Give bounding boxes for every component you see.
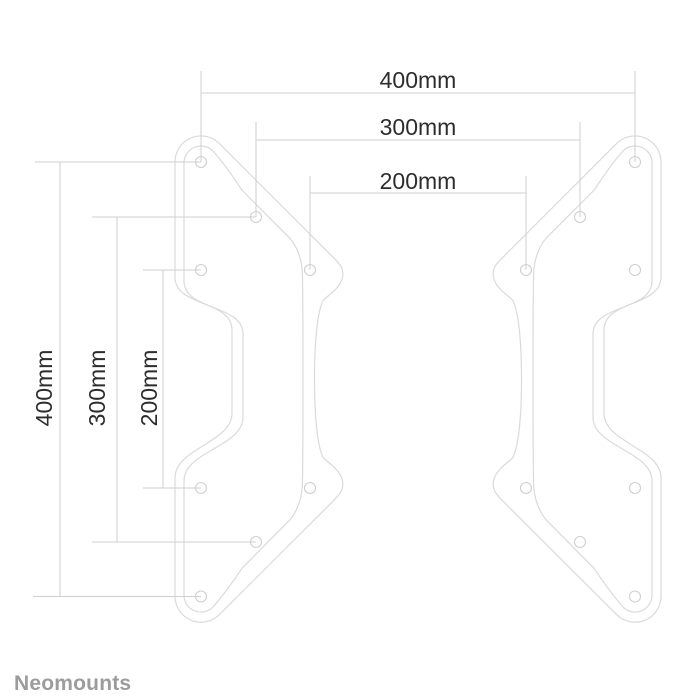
vesa-plate-left	[175, 136, 343, 622]
mounting-hole	[630, 265, 641, 276]
neomounts-logo: Neomounts	[14, 672, 131, 695]
mounting-holes	[196, 157, 641, 603]
dimension-horizontal-300: 300mm	[256, 114, 580, 217]
vesa-adapter-diagram: 400mm 300mm 200mm 400mm 300mm 200mm Neom…	[0, 0, 700, 700]
dimension-vertical-200: 200mm	[136, 270, 201, 488]
dimension-horizontal-200: 200mm	[310, 168, 526, 270]
dimension-label-horizontal-200: 200mm	[380, 168, 457, 194]
mounting-hole	[305, 483, 316, 494]
mounting-hole	[630, 483, 641, 494]
dimension-label-horizontal-400: 400mm	[380, 67, 457, 93]
vesa-plate-right	[493, 136, 661, 622]
mounting-hole	[521, 483, 532, 494]
drawing-canvas: 400mm 300mm 200mm 400mm 300mm 200mm Neom…	[0, 0, 700, 700]
dimension-label-horizontal-300: 300mm	[380, 114, 457, 140]
dimension-vertical-300: 300mm	[84, 217, 256, 542]
mounting-hole	[630, 591, 641, 602]
dimension-label-vertical-300: 300mm	[84, 350, 110, 427]
mounting-hole	[575, 537, 586, 548]
dimension-label-vertical-200: 200mm	[136, 350, 162, 427]
dimension-label-vertical-400: 400mm	[31, 350, 57, 427]
